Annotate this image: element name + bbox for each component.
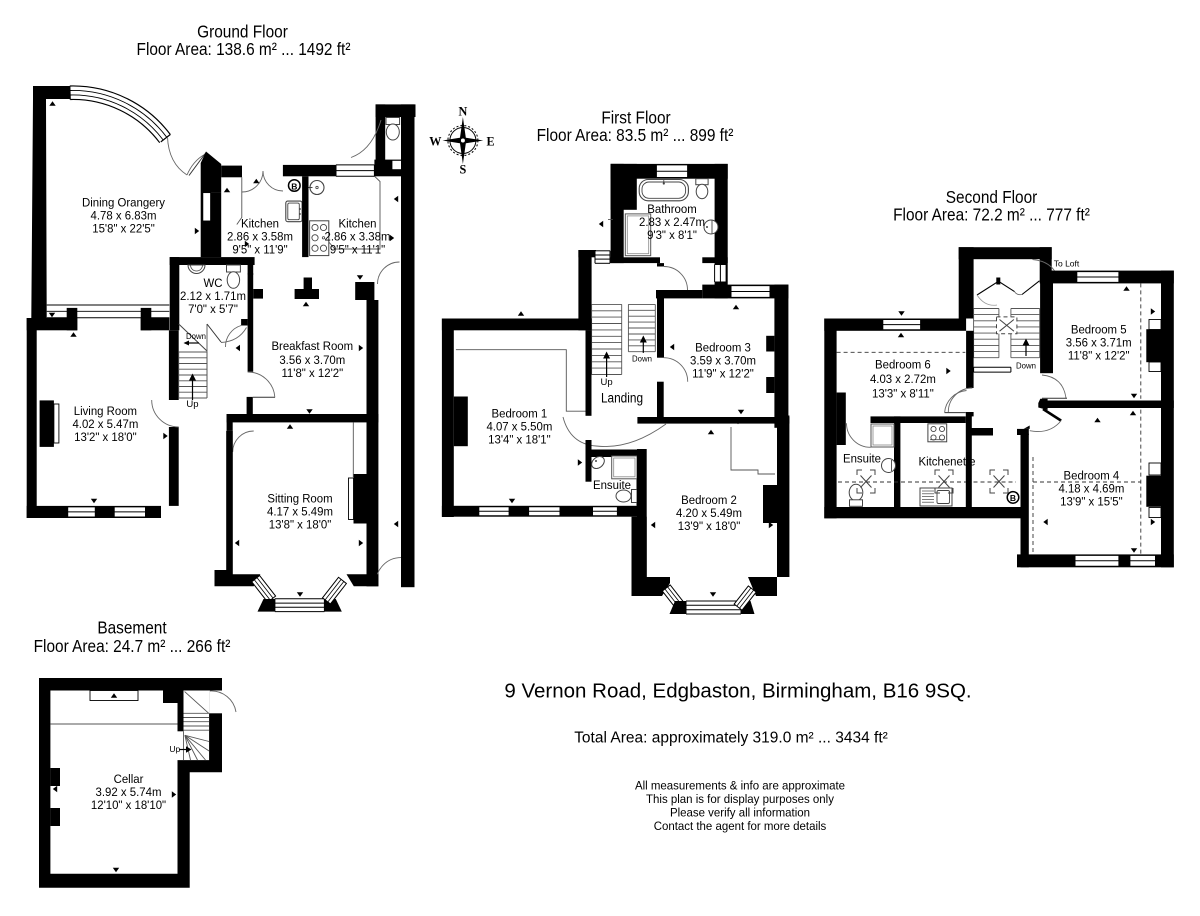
svg-text:N: N	[459, 104, 468, 119]
svg-text:Bedroom 4: Bedroom 4	[1064, 469, 1120, 483]
svg-text:Dining Orangery: Dining Orangery	[82, 196, 166, 210]
svg-text:Kitchen: Kitchen	[339, 217, 377, 231]
svg-text:3.59 x 3.70m: 3.59 x 3.70m	[690, 354, 756, 368]
svg-text:Kitchenette: Kitchenette	[919, 455, 976, 469]
svg-text:WC: WC	[204, 276, 223, 290]
svg-text:Down: Down	[632, 355, 652, 364]
svg-text:W: W	[429, 134, 441, 149]
svg-text:B: B	[1010, 493, 1016, 503]
svg-text:13'8" x 18'0": 13'8" x 18'0"	[269, 518, 332, 532]
svg-text:E: E	[486, 134, 494, 149]
svg-text:To Loft: To Loft	[1054, 259, 1080, 269]
svg-text:Ensuite: Ensuite	[843, 452, 881, 466]
svg-text:Bedroom 5: Bedroom 5	[1071, 323, 1127, 337]
svg-text:Please verify all information: Please verify all information	[670, 806, 810, 820]
svg-text:Up: Up	[169, 744, 180, 754]
svg-text:11'9" x 12'2": 11'9" x 12'2"	[692, 367, 754, 381]
svg-text:2.86 x 3.38m: 2.86 x 3.38m	[325, 230, 391, 244]
svg-text:S: S	[460, 162, 467, 177]
svg-text:3.56 x 3.70m: 3.56 x 3.70m	[279, 353, 345, 367]
svg-text:4.02 x 5.47m: 4.02 x 5.47m	[72, 417, 138, 431]
svg-text:Down: Down	[186, 332, 206, 341]
svg-text:2.83 x 2.47m: 2.83 x 2.47m	[639, 215, 705, 229]
svg-text:All measurements & info are ap: All measurements & info are approximate	[635, 779, 845, 793]
svg-text:13'2" x 18'0": 13'2" x 18'0"	[74, 430, 137, 444]
svg-text:4.78 x 6.83m: 4.78 x 6.83m	[91, 209, 157, 223]
svg-text:2.86 x 3.58m: 2.86 x 3.58m	[227, 230, 293, 244]
svg-text:Basement: Basement	[97, 618, 166, 638]
svg-text:Living Room: Living Room	[74, 404, 137, 418]
svg-text:7'0" x 5'7": 7'0" x 5'7"	[188, 302, 238, 316]
svg-text:This plan is for display purpo: This plan is for display purposes only	[646, 792, 835, 806]
svg-text:9'5" x 11'1": 9'5" x 11'1"	[330, 243, 385, 257]
svg-text:4.18 x 4.69m: 4.18 x 4.69m	[1058, 482, 1124, 496]
svg-text:4.03 x 2.72m: 4.03 x 2.72m	[870, 372, 936, 386]
svg-text:Bedroom 1: Bedroom 1	[492, 407, 548, 421]
svg-text:11'8" x 12'2": 11'8" x 12'2"	[281, 366, 343, 380]
svg-text:Bathroom: Bathroom	[647, 202, 696, 216]
svg-text:Contact the agent for more det: Contact the agent for more details	[654, 819, 827, 833]
svg-text:Floor Area: 72.2 m² ... 777 ft: Floor Area: 72.2 m² ... 777 ft²	[893, 205, 1090, 225]
svg-text:13'4" x 18'1": 13'4" x 18'1"	[488, 433, 551, 447]
svg-text:Floor Area: 24.7 m² ... 266 ft: Floor Area: 24.7 m² ... 266 ft²	[34, 636, 231, 656]
svg-text:Floor Area: 83.5 m² ... 899 ft: Floor Area: 83.5 m² ... 899 ft²	[537, 125, 734, 145]
svg-text:13'9" x 15'5": 13'9" x 15'5"	[1060, 495, 1123, 509]
svg-text:11'8" x 12'2": 11'8" x 12'2"	[1068, 349, 1130, 363]
svg-text:3.92 x 5.74m: 3.92 x 5.74m	[96, 785, 162, 799]
svg-text:12'10" x 18'10": 12'10" x 18'10"	[91, 798, 166, 812]
svg-text:15'8" x 22'5": 15'8" x 22'5"	[92, 222, 155, 236]
svg-text:Total Area: approximately 319.: Total Area: approximately 319.0 m² ... 3…	[574, 730, 888, 747]
svg-text:4.07 x 5.50m: 4.07 x 5.50m	[486, 420, 552, 434]
svg-text:2.12 x 1.71m: 2.12 x 1.71m	[180, 289, 246, 303]
svg-text:4.20 x 5.49m: 4.20 x 5.49m	[676, 506, 742, 520]
svg-text:9 Vernon Road, Edgbaston, Birm: 9 Vernon Road, Edgbaston, Birmingham, B1…	[504, 680, 971, 703]
svg-text:Up: Up	[186, 399, 198, 410]
svg-text:Landing: Landing	[601, 391, 643, 406]
svg-text:Cellar: Cellar	[114, 772, 144, 786]
svg-text:Bedroom 6: Bedroom 6	[875, 358, 931, 372]
svg-text:Sitting Room: Sitting Room	[267, 492, 332, 506]
svg-text:B: B	[291, 181, 297, 191]
svg-text:9'5" x 11'9": 9'5" x 11'9"	[232, 243, 287, 257]
svg-text:Bedroom 3: Bedroom 3	[695, 341, 751, 355]
svg-text:Breakfast Room: Breakfast Room	[271, 339, 353, 353]
svg-text:Up: Up	[601, 377, 613, 388]
svg-text:Kitchen: Kitchen	[241, 217, 279, 231]
svg-text:9'3" x 8'1": 9'3" x 8'1"	[647, 228, 697, 242]
svg-text:4.17 x 5.49m: 4.17 x 5.49m	[267, 505, 333, 519]
svg-text:3.56 x 3.71m: 3.56 x 3.71m	[1066, 336, 1132, 350]
svg-text:13'9" x 18'0": 13'9" x 18'0"	[678, 519, 741, 533]
svg-text:13'3" x 8'11": 13'3" x 8'11"	[872, 387, 934, 401]
svg-text:Floor Area: 138.6 m² ... 1492: Floor Area: 138.6 m² ... 1492 ft²	[137, 39, 351, 59]
svg-text:Down: Down	[1016, 362, 1036, 371]
svg-text:Bedroom 2: Bedroom 2	[681, 493, 737, 507]
